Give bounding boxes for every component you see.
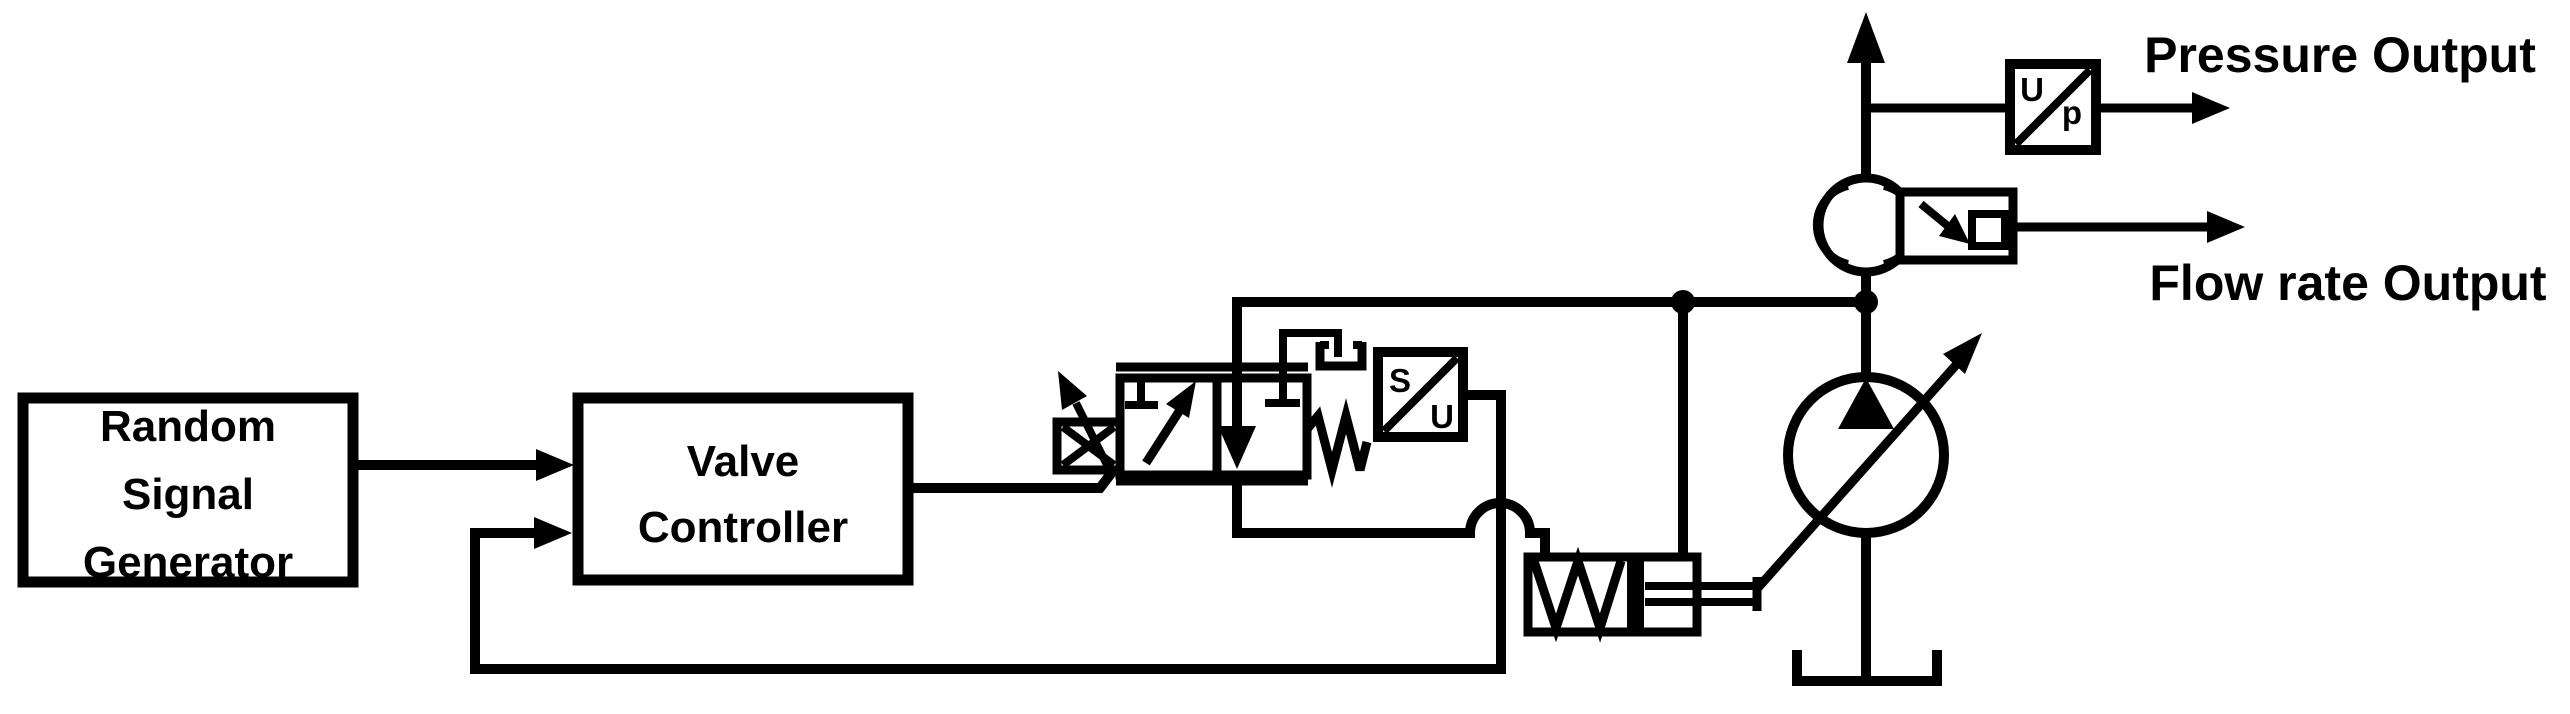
arrowhead-icon (534, 517, 572, 549)
hydraulic-schematic: Random Signal Generator Valve Controller (0, 0, 2570, 714)
rsg-label-line1: Random (100, 402, 276, 451)
pilot-cylinder-symbol (1528, 557, 1757, 632)
cylinder-spring-icon (1534, 561, 1621, 628)
sensor-top-label: S (1389, 362, 1411, 399)
proportional-solenoid-icon (1057, 371, 1120, 473)
arrowhead-icon (1058, 371, 1087, 410)
arrowhead-icon (1847, 12, 1885, 63)
pressure-output-label: Pressure Output (2144, 27, 2536, 83)
arrowhead-icon (1166, 381, 1196, 418)
rsg-label-line3: Generator (83, 538, 293, 587)
variable-pump-symbol (1756, 302, 1982, 681)
transducer-bottom-label: p (2062, 94, 2082, 131)
rsg-to-controller-arrow (353, 449, 574, 481)
arrowhead-icon (536, 449, 574, 481)
rsg-label-line2: Signal (122, 470, 254, 519)
valve-controller-box (578, 398, 908, 580)
transducer-top-label: U (2020, 71, 2044, 108)
valve-left-position (1125, 381, 1196, 463)
arrowhead-icon (1218, 426, 1256, 469)
blocked-port-icon (1125, 381, 1158, 405)
cylinder-piston (1627, 559, 1644, 630)
proportional-valve-symbol (1057, 333, 1367, 481)
flow-rate-output-label: Flow rate Output (2149, 255, 2547, 311)
return-spring-icon (1308, 416, 1367, 470)
spool-position-sensor-block: S U (1378, 352, 1463, 437)
controller-label-line2: Controller (638, 503, 848, 552)
valve-controller-block: Valve Controller (578, 398, 908, 580)
arrowhead-icon (2207, 211, 2245, 243)
pump-outlet-triangle (1838, 378, 1894, 429)
junction-dot (1671, 290, 1695, 314)
sensor-bottom-label: U (1430, 398, 1454, 435)
controller-label-line1: Valve (687, 437, 800, 486)
schematic-svg: Random Signal Generator Valve Controller (0, 0, 2570, 714)
random-signal-generator-block: Random Signal Generator (23, 398, 353, 587)
arrowhead-icon (2192, 92, 2230, 124)
flow-path-shaft (1146, 410, 1180, 463)
